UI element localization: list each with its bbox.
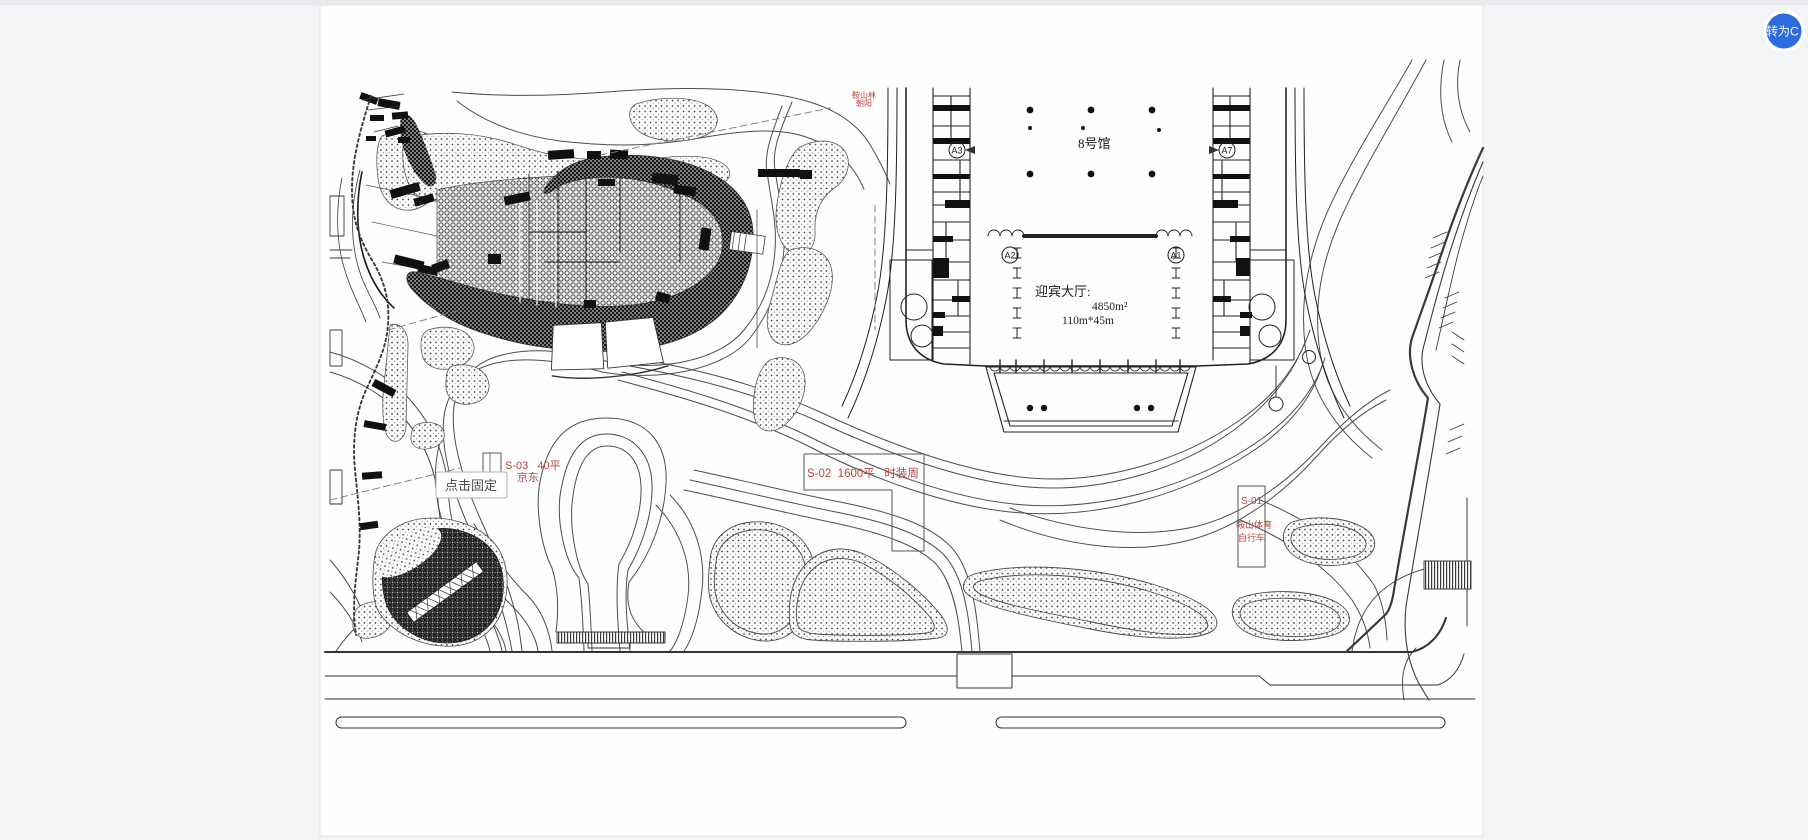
- svg-text:8号馆: 8号馆: [1078, 136, 1111, 151]
- svg-text:自行车: 自行车: [1238, 532, 1265, 543]
- svg-text:S-01: S-01: [1241, 496, 1263, 507]
- svg-text:朝阳: 朝阳: [856, 99, 872, 108]
- svg-text:4850m²: 4850m²: [1092, 301, 1128, 313]
- svg-text:转为C: 转为C: [1766, 24, 1799, 39]
- svg-text:A2: A2: [1004, 251, 1015, 261]
- svg-text:京东: 京东: [517, 470, 539, 484]
- svg-text:点击固定: 点击固定: [445, 478, 497, 493]
- svg-text:迎宾大厅:: 迎宾大厅:: [1035, 284, 1091, 299]
- svg-text:A7: A7: [1221, 146, 1232, 156]
- svg-text:110m*45m: 110m*45m: [1062, 315, 1114, 327]
- svg-text:鞍山体育: 鞍山体育: [1236, 519, 1272, 530]
- svg-text:A3: A3: [951, 146, 962, 156]
- svg-text:S-02 1600平 时装周: S-02 1600平 时装周: [807, 467, 919, 480]
- svg-text:S-03 40平: S-03 40平: [505, 460, 561, 472]
- svg-text:A1: A1: [1170, 251, 1181, 261]
